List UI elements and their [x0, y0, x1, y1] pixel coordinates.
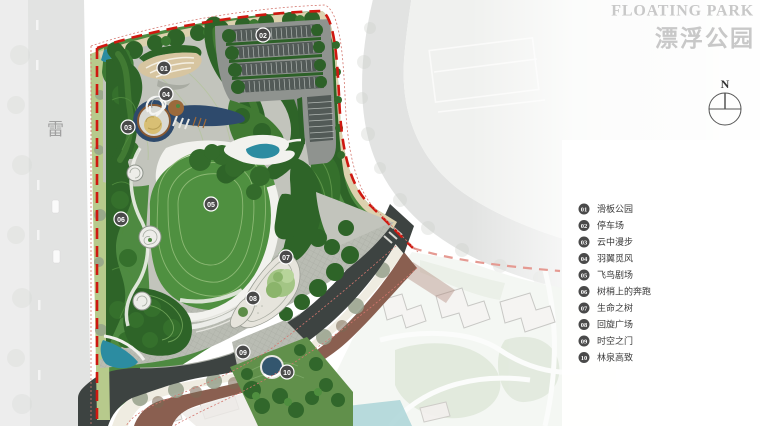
svg-text:时空之门: 时空之门 [597, 335, 633, 346]
svg-text:飞鸟剧场: 飞鸟剧场 [597, 269, 633, 280]
svg-text:02: 02 [581, 223, 588, 230]
svg-text:林泉高致: 林泉高致 [597, 352, 633, 363]
svg-text:停车场: 停车场 [597, 220, 624, 231]
svg-text:09: 09 [239, 350, 247, 357]
svg-text:09: 09 [581, 339, 588, 346]
svg-text:滑板公园: 滑板公园 [597, 203, 633, 214]
svg-text:08: 08 [581, 322, 588, 329]
svg-text:01: 01 [160, 66, 168, 73]
svg-text:生命之树: 生命之树 [597, 302, 633, 313]
svg-text:云中漫步: 云中漫步 [597, 236, 633, 247]
svg-text:雷: 雷 [47, 120, 64, 139]
svg-text:10: 10 [581, 355, 588, 362]
svg-text:N: N [721, 77, 730, 91]
svg-text:07: 07 [282, 255, 290, 262]
svg-text:01: 01 [581, 207, 588, 214]
svg-text:06: 06 [117, 217, 125, 224]
svg-text:羽翼觅风: 羽翼觅风 [597, 253, 633, 264]
svg-text:02: 02 [259, 33, 267, 40]
svg-text:04: 04 [581, 256, 588, 263]
svg-text:05: 05 [207, 202, 215, 209]
svg-text:03: 03 [581, 240, 588, 247]
svg-text:回旋广场: 回旋广场 [597, 319, 633, 330]
svg-text:05: 05 [581, 273, 588, 280]
svg-text:08: 08 [249, 296, 257, 303]
svg-text:03: 03 [124, 125, 132, 132]
svg-text:07: 07 [581, 306, 588, 313]
svg-text:04: 04 [162, 92, 170, 99]
svg-text:10: 10 [283, 370, 291, 377]
svg-text:FLOATING PARK: FLOATING PARK [611, 3, 754, 20]
svg-text:06: 06 [581, 289, 588, 296]
svg-text:树梢上的奔跑: 树梢上的奔跑 [597, 286, 651, 297]
svg-text:漂浮公园: 漂浮公园 [655, 25, 755, 51]
